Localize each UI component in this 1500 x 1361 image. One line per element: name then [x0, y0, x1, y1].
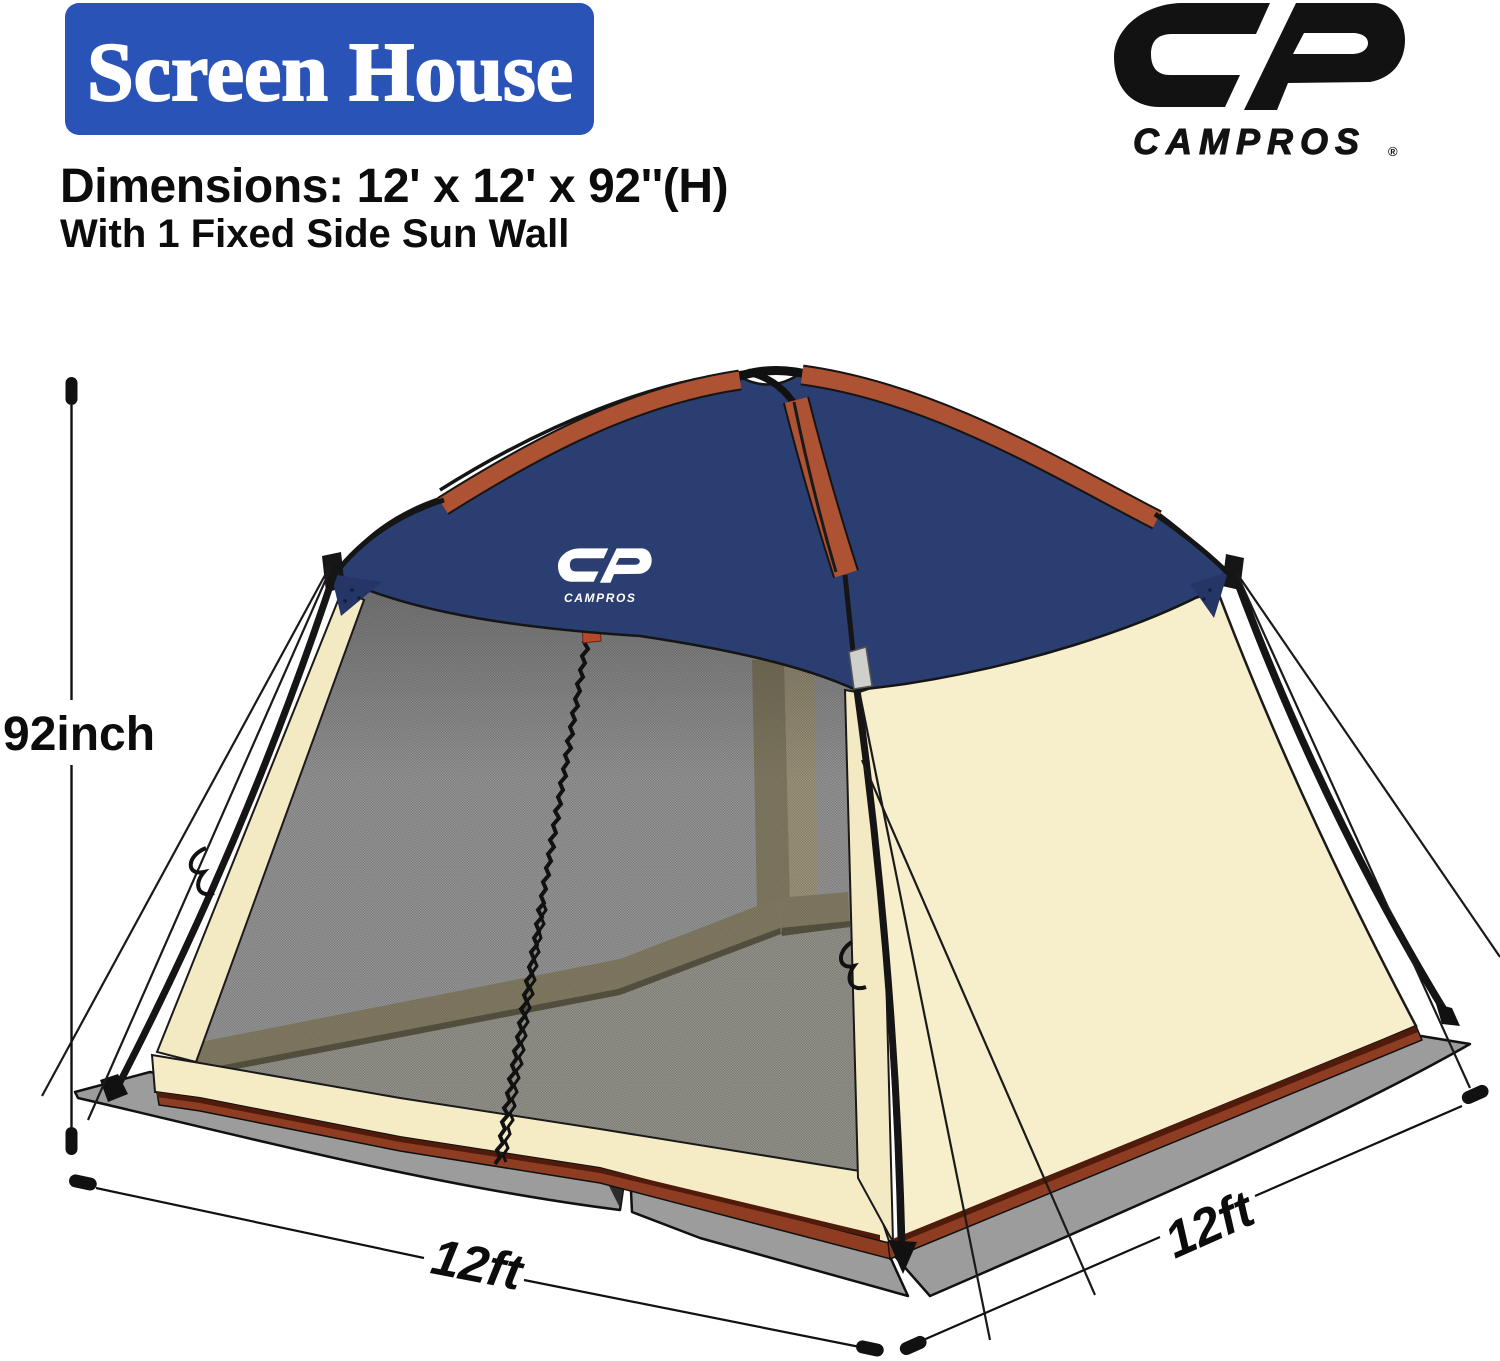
- svg-text:Screen House: Screen House: [87, 26, 573, 119]
- svg-text:With 1 Fixed Side Sun Wall: With 1 Fixed Side Sun Wall: [60, 212, 569, 256]
- svg-text:®: ®: [1388, 144, 1398, 159]
- svg-text:CAMPROS: CAMPROS: [564, 591, 637, 605]
- svg-text:12ft: 12ft: [1156, 1179, 1264, 1269]
- svg-text:12ft: 12ft: [427, 1228, 529, 1302]
- svg-text:92inch: 92inch: [3, 708, 155, 761]
- svg-text:CAMPROS: CAMPROS: [1133, 121, 1366, 162]
- svg-text:Dimensions: 12' x 12' x 92''(H: Dimensions: 12' x 12' x 92''(H): [60, 160, 728, 213]
